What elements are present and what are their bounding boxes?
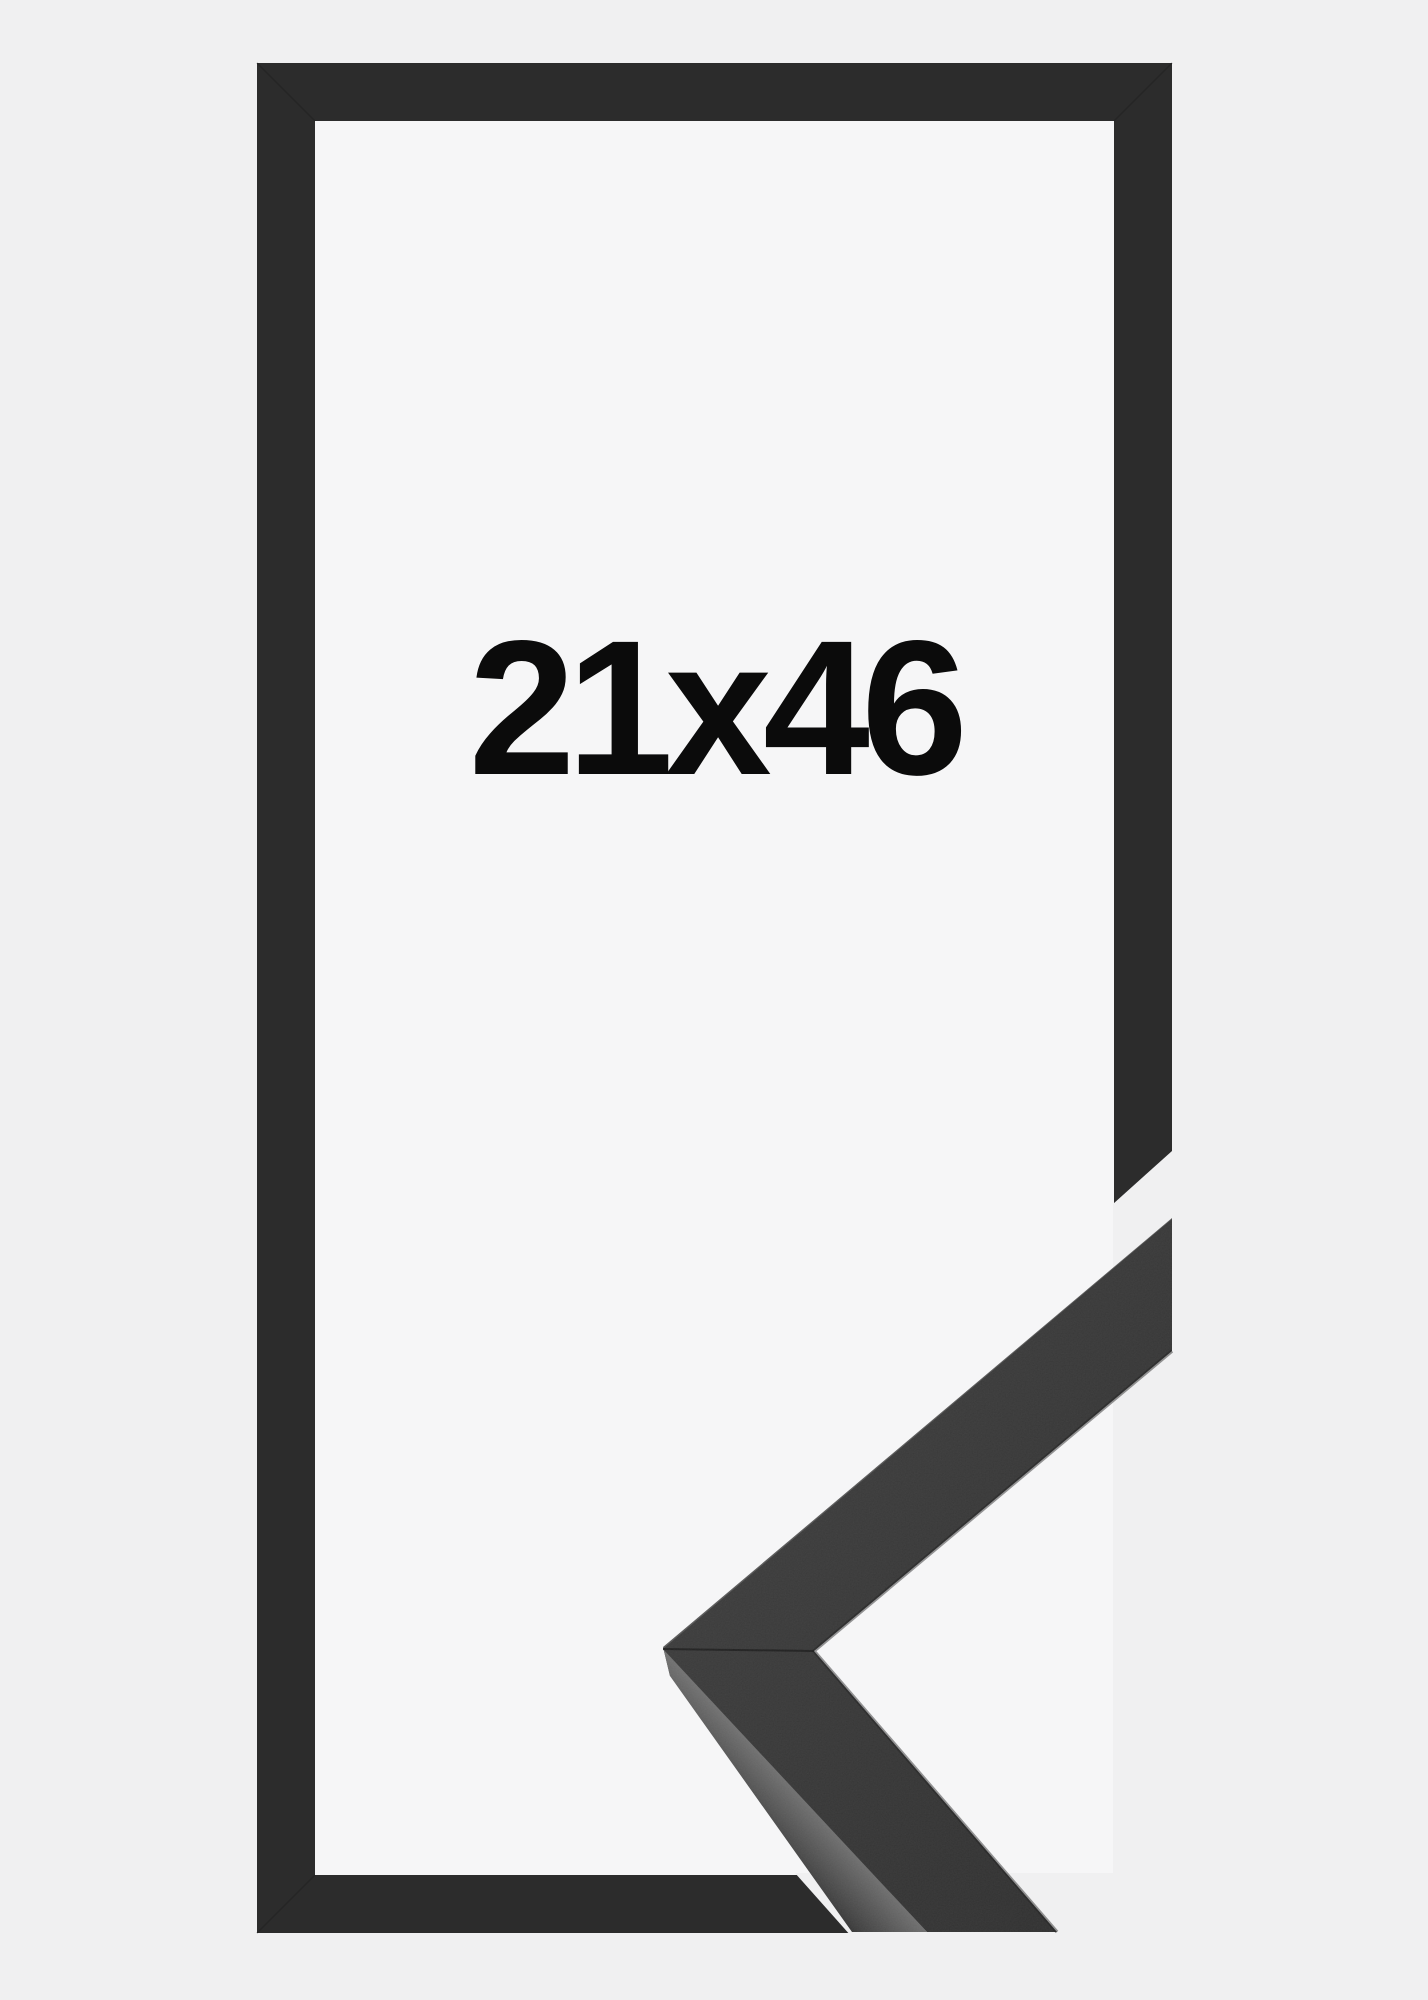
frame-illustration (0, 0, 1428, 2000)
product-image-canvas: 21x46 (0, 0, 1428, 2000)
frame-size-label: 21x46 (0, 612, 1428, 804)
